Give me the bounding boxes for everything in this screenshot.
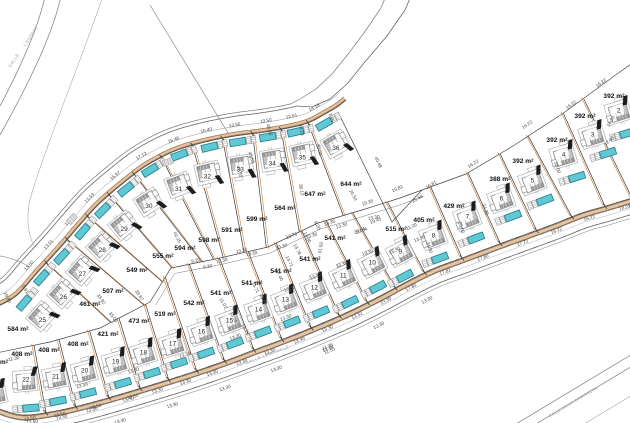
svg-text:408 m2: 408 m2 bbox=[38, 346, 60, 354]
svg-text:13: 13 bbox=[282, 296, 290, 303]
svg-text:12: 12 bbox=[311, 284, 319, 291]
svg-text:10: 10 bbox=[369, 259, 377, 266]
svg-text:421 m2: 421 m2 bbox=[97, 330, 119, 338]
svg-text:519 m2: 519 m2 bbox=[154, 310, 176, 318]
svg-text:5: 5 bbox=[531, 177, 535, 184]
svg-text:392 m2: 392 m2 bbox=[512, 157, 534, 165]
svg-text:22: 22 bbox=[22, 377, 30, 384]
svg-text:388 m2: 388 m2 bbox=[489, 175, 511, 183]
svg-text:564 m2: 564 m2 bbox=[274, 204, 296, 212]
svg-text:20: 20 bbox=[81, 367, 89, 374]
svg-text:584 m2: 584 m2 bbox=[7, 325, 29, 333]
svg-text:7: 7 bbox=[466, 213, 470, 220]
svg-text:408 m2: 408 m2 bbox=[67, 340, 89, 348]
svg-text:591 m2: 591 m2 bbox=[221, 226, 243, 234]
svg-text:599 m2: 599 m2 bbox=[246, 215, 268, 223]
svg-text:392 m2: 392 m2 bbox=[546, 136, 568, 144]
svg-text:3: 3 bbox=[591, 131, 595, 138]
svg-text:30: 30 bbox=[145, 203, 153, 210]
svg-text:2: 2 bbox=[617, 107, 621, 114]
svg-text:405 m2: 405 m2 bbox=[413, 216, 435, 224]
svg-text:17: 17 bbox=[169, 340, 177, 347]
svg-text:34: 34 bbox=[269, 161, 277, 168]
svg-text:541 m2: 541 m2 bbox=[299, 255, 321, 263]
svg-text:598 m2: 598 m2 bbox=[198, 236, 220, 244]
svg-text:515 m2: 515 m2 bbox=[385, 225, 407, 233]
svg-text:31: 31 bbox=[175, 186, 183, 193]
svg-text:541 m2: 541 m2 bbox=[324, 234, 346, 242]
svg-text:16: 16 bbox=[198, 328, 206, 335]
svg-text:473 m2: 473 m2 bbox=[128, 317, 150, 325]
svg-text:26: 26 bbox=[60, 294, 68, 301]
svg-text:19: 19 bbox=[112, 358, 120, 365]
svg-text:6: 6 bbox=[500, 195, 504, 202]
svg-text:8: 8 bbox=[432, 232, 436, 239]
svg-text:549 m2: 549 m2 bbox=[126, 266, 148, 274]
svg-text:4: 4 bbox=[562, 151, 566, 158]
svg-text:29: 29 bbox=[120, 226, 128, 233]
svg-text:32: 32 bbox=[204, 174, 212, 181]
svg-text:25: 25 bbox=[39, 317, 47, 324]
svg-text:644 m2: 644 m2 bbox=[340, 180, 362, 188]
svg-text:21: 21 bbox=[52, 374, 60, 381]
svg-text:542 m2: 542 m2 bbox=[183, 299, 205, 307]
svg-text:27: 27 bbox=[79, 271, 87, 278]
svg-text:392 m2: 392 m2 bbox=[574, 112, 596, 120]
svg-text:392 m2: 392 m2 bbox=[603, 92, 625, 100]
svg-text:36: 36 bbox=[332, 145, 340, 152]
svg-text:14: 14 bbox=[255, 306, 263, 313]
svg-text:555 m2: 555 m2 bbox=[152, 252, 174, 260]
svg-text:18: 18 bbox=[140, 349, 148, 356]
svg-text:1-1: 1-1 bbox=[24, 391, 29, 395]
svg-text:541 m2: 541 m2 bbox=[210, 289, 232, 297]
svg-text:594 m2: 594 m2 bbox=[174, 244, 196, 252]
svg-text:35: 35 bbox=[299, 155, 307, 162]
svg-text:11: 11 bbox=[340, 272, 347, 279]
svg-text:507 m2: 507 m2 bbox=[102, 287, 124, 295]
svg-text:429 m2: 429 m2 bbox=[443, 202, 465, 210]
svg-text:28: 28 bbox=[99, 247, 107, 254]
svg-text:647 m2: 647 m2 bbox=[304, 190, 326, 198]
svg-text:461 m2: 461 m2 bbox=[79, 300, 101, 308]
